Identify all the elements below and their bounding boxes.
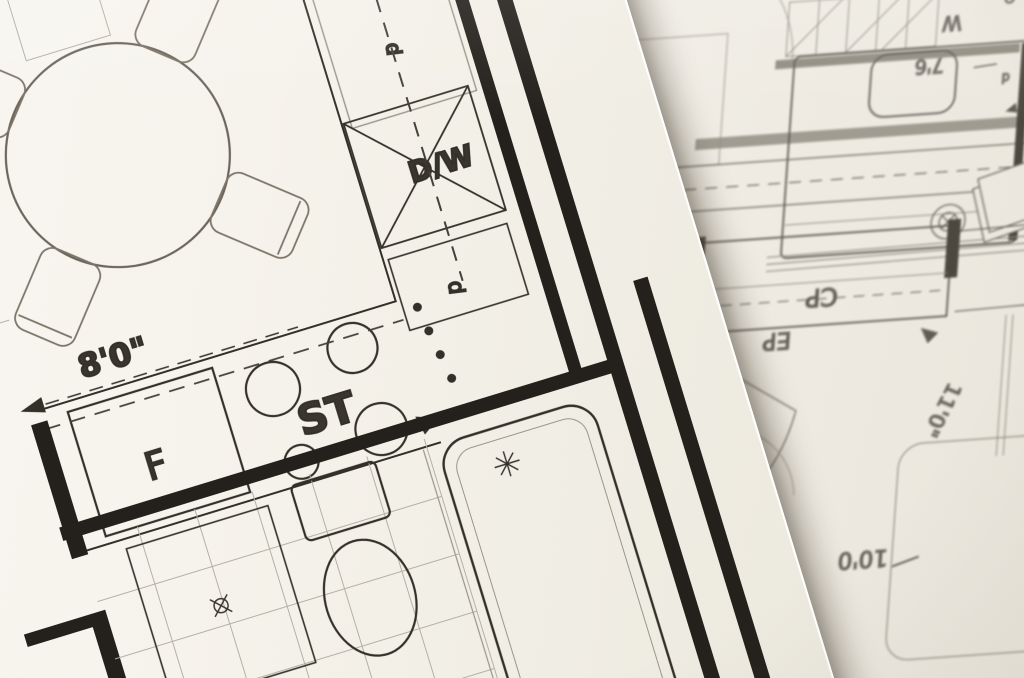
cabinet-door-label: d [443,279,468,295]
counter-front [80,442,441,552]
chair [192,149,327,282]
counter-edge [0,0,396,411]
dimension-label: 10'0 [837,544,889,574]
entry-label: EP [762,326,792,354]
faint-line [0,320,9,369]
refrigerator-label: F [139,441,173,489]
closet-label: CP [804,281,838,312]
door-label-small: d [1001,69,1010,85]
stove-label: ST [291,382,362,446]
drain-icon [491,448,523,480]
dishwasher-label: D/W [404,138,478,190]
thin-wall [996,314,1013,456]
shower [126,506,315,678]
faint-dashed-line [0,336,8,388]
dimension-label: 8'0" [73,329,152,386]
dimension-arrow [920,327,939,344]
dimension-label: 7'6 [914,54,945,79]
closet-run [631,142,1024,216]
drain-icon [210,594,232,616]
dimension-arrow [18,397,46,419]
interior-wall [695,116,1024,150]
dining-table [0,0,333,370]
wardrobe-label: W [941,10,963,35]
faint-outline [6,0,111,61]
stove-burner [321,317,383,379]
photo-of-blueprints: 6'0 d [0,0,1024,678]
rug-outline [885,422,1024,662]
chair [112,0,245,81]
dimension-tick [892,557,919,567]
stove-knobs [412,298,458,387]
bathtub [423,399,689,678]
dimension-label: 11'0" [918,380,967,441]
fixture-label: O [1004,0,1016,5]
wall-stub [24,615,93,647]
left-wall-upper [31,420,88,559]
stove [235,298,472,489]
dimension-arrow [1005,103,1018,114]
toilet [289,460,430,667]
closet-cp [685,213,1024,341]
nightstand [971,162,1024,242]
dimension-tick [974,64,997,68]
